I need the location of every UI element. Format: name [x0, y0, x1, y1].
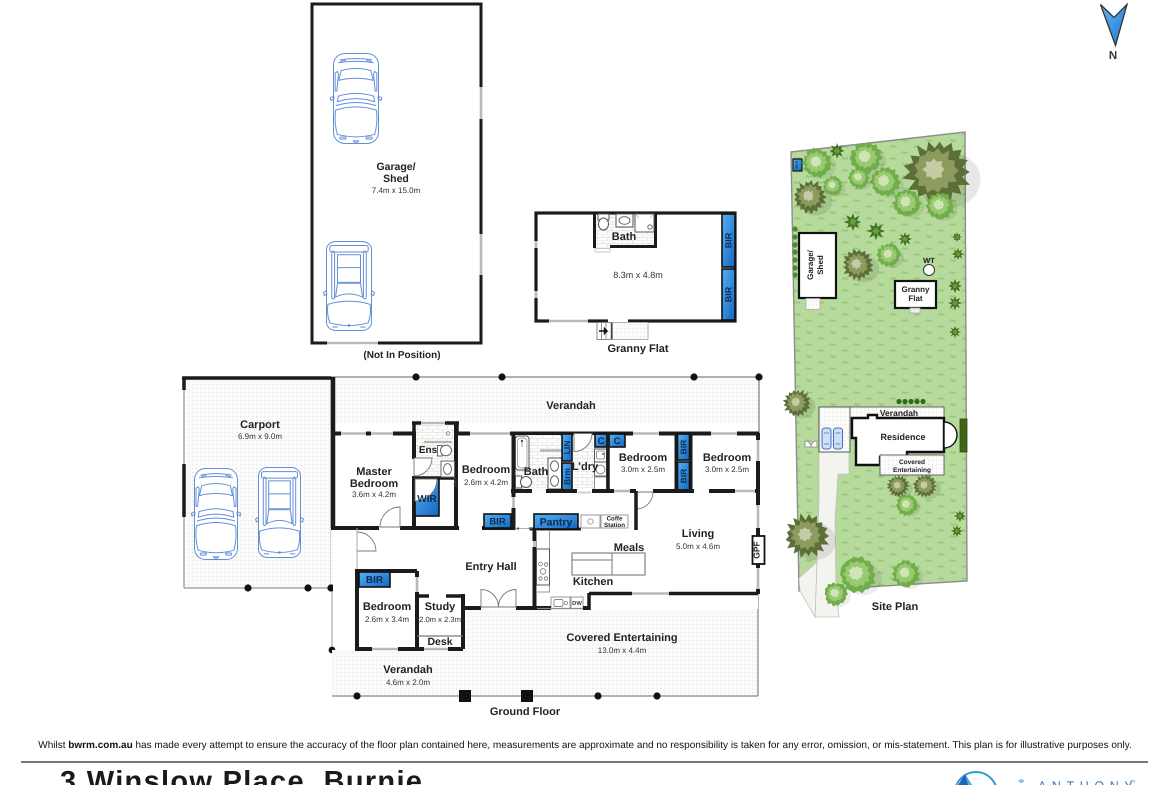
svg-text:(Not In Position): (Not In Position) — [363, 350, 440, 361]
svg-text:Bath: Bath — [524, 466, 549, 478]
svg-text:Bedroom: Bedroom — [462, 464, 511, 476]
svg-text:Shed: Shed — [383, 173, 409, 185]
svg-text:Bedroom: Bedroom — [619, 452, 668, 464]
svg-text:Shed: Shed — [816, 255, 825, 275]
svg-text:Granny: Granny — [901, 285, 930, 294]
svg-text:2.6m x 4.2m: 2.6m x 4.2m — [464, 478, 508, 487]
svg-text:5.0m x 4.6m: 5.0m x 4.6m — [676, 542, 720, 551]
svg-text:BIR: BIR — [679, 469, 689, 484]
svg-text:Site Plan: Site Plan — [872, 601, 919, 613]
svg-text:C: C — [614, 436, 621, 447]
svg-text:Whilst bwrm.com.au has made ev: Whilst bwrm.com.au has made every attemp… — [38, 740, 1131, 751]
svg-text:Living: Living — [682, 528, 714, 540]
svg-text:DW: DW — [572, 601, 582, 607]
svg-text:Bedroom: Bedroom — [350, 478, 399, 490]
svg-text:Entertaining: Entertaining — [893, 467, 931, 474]
svg-text:WIR: WIR — [417, 494, 437, 505]
svg-text:BIR: BIR — [366, 575, 384, 586]
svg-text:WT: WT — [923, 256, 935, 265]
svg-text:Garage/: Garage/ — [376, 161, 415, 173]
svg-text:6.9m x 9.0m: 6.9m x 9.0m — [238, 432, 282, 441]
svg-text:GPF: GPF — [752, 541, 762, 558]
svg-text:Ground Floor: Ground Floor — [490, 706, 561, 718]
svg-text:Shed: Shed — [795, 161, 799, 169]
svg-text:2.0m x 2.3m: 2.0m x 2.3m — [419, 615, 461, 624]
svg-text:Study: Study — [425, 601, 456, 613]
svg-text:BIR: BIR — [724, 232, 734, 248]
svg-text:3.0m x 2.5m: 3.0m x 2.5m — [621, 465, 665, 474]
svg-text:Verandah: Verandah — [383, 664, 433, 676]
svg-text:BIR: BIR — [679, 440, 689, 455]
svg-text:Kitchen: Kitchen — [573, 576, 614, 588]
svg-text:Verandah: Verandah — [546, 400, 596, 412]
svg-text:Residence: Residence — [880, 432, 925, 442]
svg-text:Bath: Bath — [612, 231, 637, 243]
svg-text:Flat: Flat — [908, 294, 923, 303]
svg-text:Meals: Meals — [614, 542, 645, 554]
svg-text:shelf: shelf — [453, 477, 458, 487]
svg-text:3.6m x 4.2m: 3.6m x 4.2m — [352, 490, 396, 499]
svg-text:L’dry: L’dry — [572, 461, 599, 473]
svg-text:C: C — [598, 436, 605, 447]
svg-text:Brm: Brm — [562, 468, 572, 485]
svg-text:ANTHONY: ANTHONY — [1038, 779, 1138, 785]
svg-text:Station: Station — [604, 522, 625, 529]
svg-text:8.3m x 4.8m: 8.3m x 4.8m — [613, 270, 663, 280]
svg-text:BIR: BIR — [489, 516, 506, 527]
svg-text:Covered: Covered — [899, 459, 925, 466]
svg-text:2.6m x 3.4m: 2.6m x 3.4m — [365, 615, 409, 624]
svg-text:4.6m x 2.0m: 4.6m x 2.0m — [386, 678, 430, 687]
svg-text:BIR: BIR — [724, 286, 734, 302]
svg-text:3.0m x 2.5m: 3.0m x 2.5m — [705, 465, 749, 474]
svg-text:Pantry: Pantry — [540, 516, 573, 528]
svg-text:Granny Flat: Granny Flat — [607, 343, 668, 355]
svg-text:N: N — [1109, 50, 1117, 62]
svg-text:Desk: Desk — [427, 636, 452, 648]
svg-text:Bedroom: Bedroom — [703, 452, 752, 464]
svg-text:Master: Master — [356, 466, 392, 478]
svg-text:Entry Hall: Entry Hall — [465, 561, 516, 573]
svg-text:Carport: Carport — [240, 419, 280, 431]
svg-text:LIN: LIN — [562, 441, 572, 455]
svg-text:7.4m x 15.0m: 7.4m x 15.0m — [372, 186, 421, 195]
svg-text:Covered Entertaining: Covered Entertaining — [566, 632, 677, 644]
svg-text:Verandah: Verandah — [880, 408, 918, 418]
svg-text:13.0m x 4.4m: 13.0m x 4.4m — [598, 646, 647, 655]
svg-text:3 Winslow Place, Burnie: 3 Winslow Place, Burnie — [60, 766, 423, 785]
svg-text:Ens: Ens — [419, 445, 438, 456]
svg-text:Garage/: Garage/ — [806, 249, 815, 280]
svg-text:Bedroom: Bedroom — [363, 601, 412, 613]
